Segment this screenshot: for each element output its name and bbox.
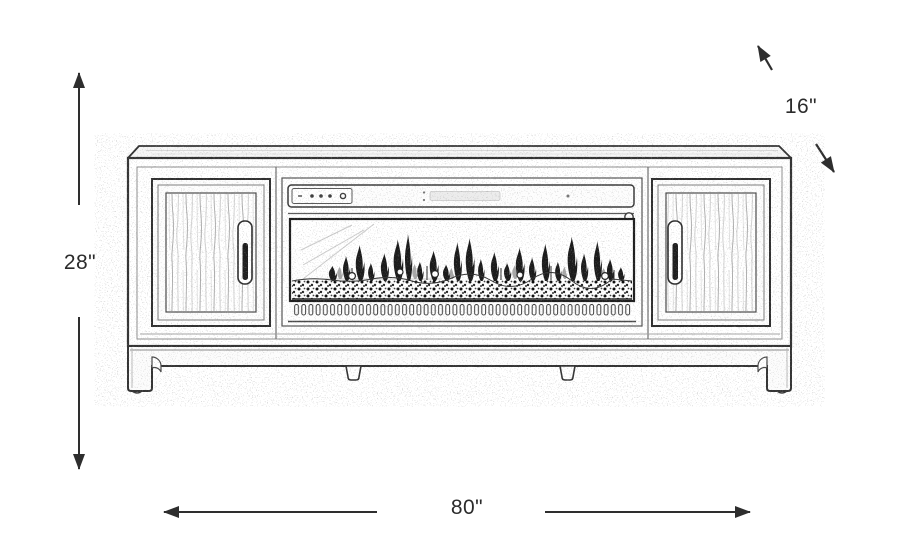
- depth-arrow-up-icon: [758, 46, 772, 70]
- console-line-drawing: [0, 0, 900, 550]
- width-dimension-label: 80": [437, 496, 497, 520]
- depth-dimension-label: 16": [771, 95, 831, 119]
- depth-arrow-down-icon: [816, 144, 834, 172]
- dimension-diagram: 28" 80" 16": [0, 0, 900, 550]
- height-dimension-label: 28": [50, 251, 110, 275]
- sketch-texture: [128, 146, 791, 394]
